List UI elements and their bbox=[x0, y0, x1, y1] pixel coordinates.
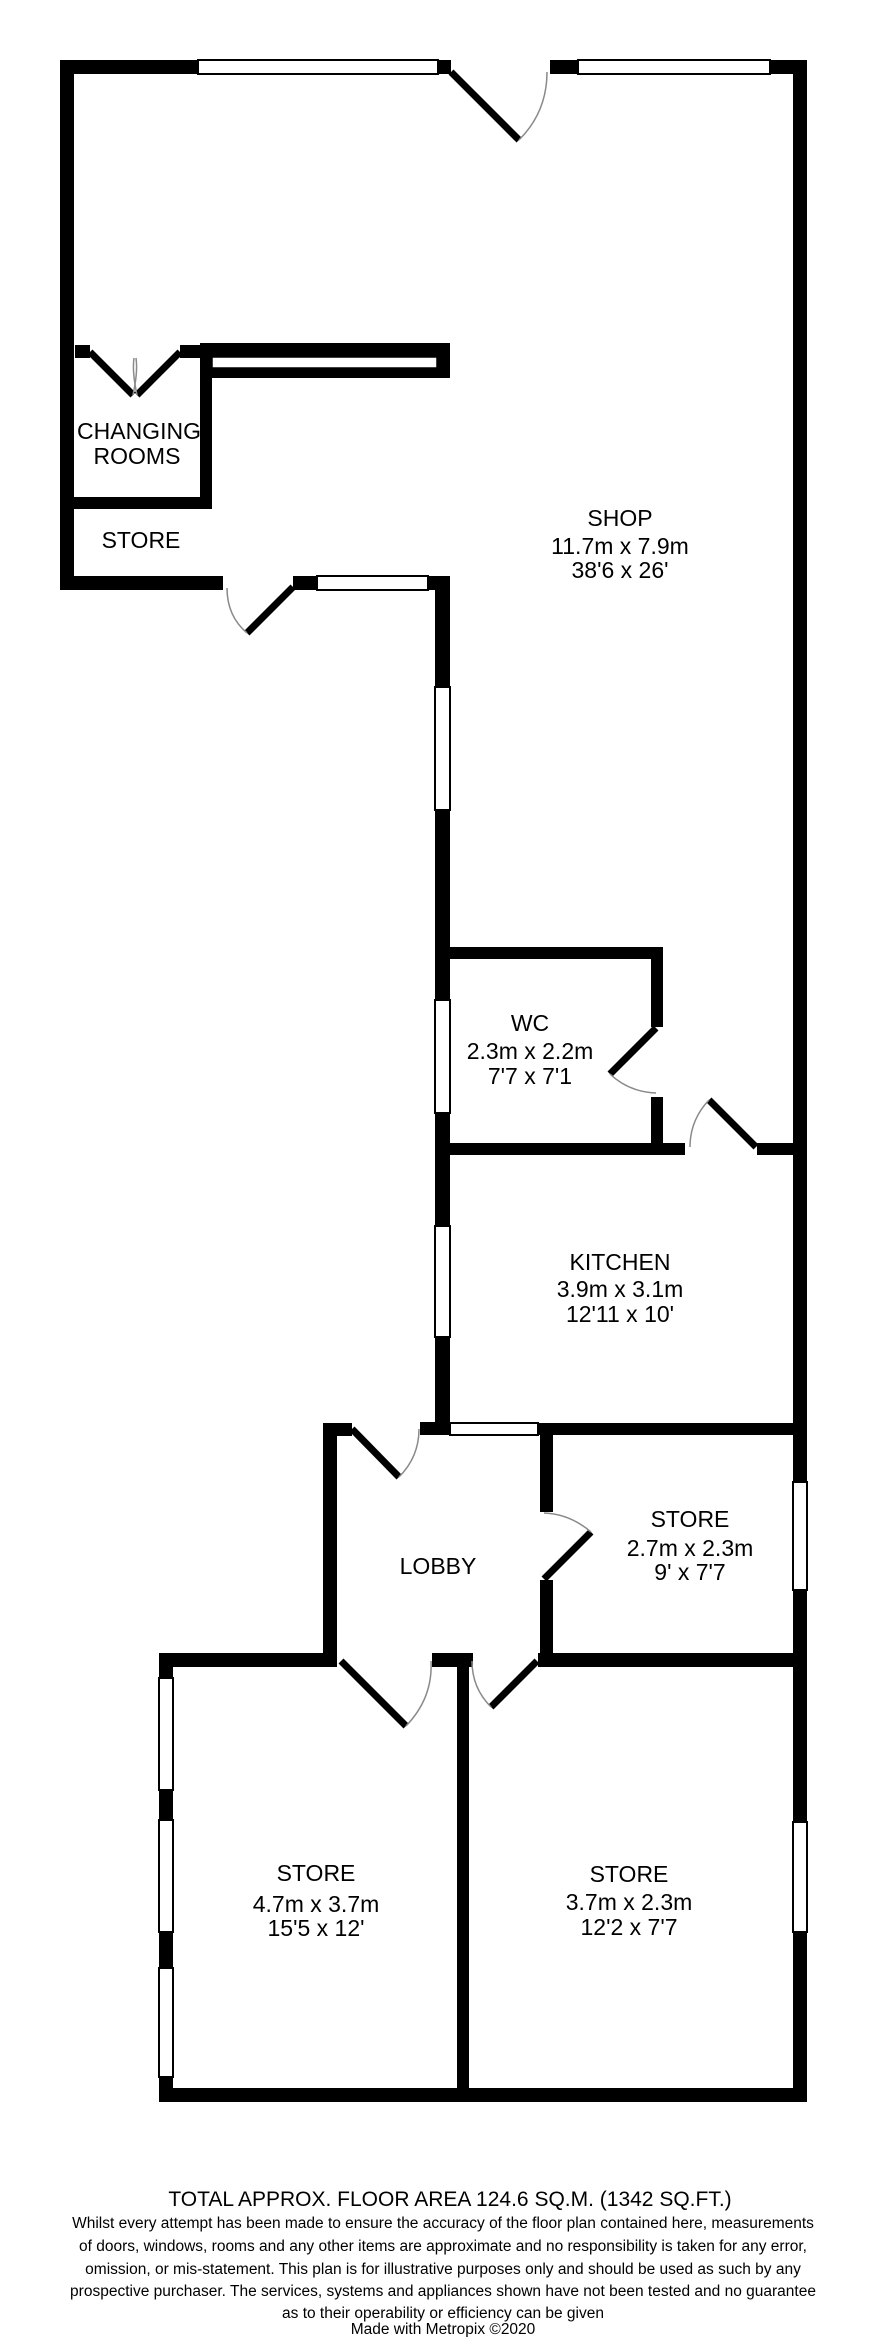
wall-segment bbox=[757, 1143, 793, 1155]
wall-segment bbox=[60, 60, 74, 590]
wall-segment bbox=[538, 1653, 793, 1667]
window bbox=[212, 357, 437, 368]
door-swing-arc bbox=[610, 1074, 656, 1093]
door-leaf bbox=[451, 72, 519, 140]
room-dim-metric: 4.7m x 3.7m bbox=[253, 1891, 380, 1917]
wall-segment bbox=[159, 1932, 173, 1968]
room-dim-metric: 3.9m x 3.1m bbox=[557, 1276, 684, 1302]
wall-segment bbox=[435, 1143, 685, 1155]
room-dim-imperial: 15'5 x 12' bbox=[267, 1915, 364, 1941]
room-label-store-bottom-right: STORE bbox=[590, 1861, 669, 1887]
wall-segment bbox=[438, 60, 451, 74]
door-leaf bbox=[90, 352, 133, 395]
wall-segment bbox=[159, 2088, 807, 2102]
door-swing-arc bbox=[227, 588, 247, 633]
wall-segment bbox=[159, 1653, 173, 1678]
metropix-credit: Made with Metropix ©2020 bbox=[351, 2321, 536, 2337]
wall-segment bbox=[538, 1423, 793, 1435]
room-dim-imperial: 12'11 x 10' bbox=[566, 1301, 674, 1327]
room-dim-metric: 2.7m x 2.3m bbox=[627, 1535, 754, 1561]
room-label-kitchen: KITCHEN bbox=[570, 1249, 671, 1275]
window bbox=[793, 1482, 807, 1590]
room-label-shop: SHOP bbox=[587, 505, 652, 531]
wall-segment bbox=[60, 60, 198, 74]
window bbox=[317, 576, 428, 590]
wall-segment bbox=[75, 345, 90, 358]
door-swing-arc bbox=[399, 1429, 419, 1477]
door-swing-arc bbox=[690, 1100, 709, 1147]
door-swing-arc bbox=[472, 1661, 491, 1707]
door-leaf bbox=[247, 587, 293, 633]
room-label-store-bottom-left: STORE bbox=[277, 1860, 356, 1886]
window bbox=[435, 1226, 450, 1337]
window bbox=[450, 1423, 538, 1435]
wall-segment bbox=[200, 345, 212, 497]
door-leaf bbox=[544, 1532, 591, 1579]
room-dim-metric: 3.7m x 2.3m bbox=[566, 1889, 693, 1915]
wall-segment bbox=[435, 810, 450, 1000]
disclaimer-line: of doors, windows, rooms and any other i… bbox=[79, 2238, 807, 2255]
wall-segment bbox=[540, 1435, 553, 1512]
disclaimer-line: Whilst every attempt has been made to en… bbox=[72, 2215, 814, 2232]
footer: TOTAL APPROX. FLOOR AREA 124.6 SQ.M. (13… bbox=[70, 2188, 816, 2337]
door-leaf bbox=[352, 1429, 399, 1477]
window bbox=[578, 60, 770, 74]
disclaimer-line: prospective purchaser. The services, sys… bbox=[70, 2283, 816, 2300]
wall-segment bbox=[435, 590, 450, 687]
wall-segment bbox=[550, 60, 578, 74]
room-dim-imperial: 9' x 7'7 bbox=[654, 1559, 725, 1585]
wall-segment bbox=[159, 2077, 173, 2102]
wall-segment bbox=[651, 947, 663, 1027]
wall-segment bbox=[159, 1653, 337, 1667]
wall-segment bbox=[323, 1435, 337, 1653]
disclaimer-line: omission, or mis-statement. This plan is… bbox=[85, 2261, 801, 2278]
wall-segment bbox=[793, 60, 807, 1482]
window bbox=[159, 1968, 173, 2077]
room-dim-imperial: 12'2 x 7'7 bbox=[580, 1914, 677, 1940]
wall-segment bbox=[323, 1423, 352, 1436]
window bbox=[159, 1820, 173, 1932]
room-label-changing-rooms: ROOMS bbox=[94, 443, 181, 469]
wall-segment bbox=[435, 947, 663, 959]
wall-segment bbox=[180, 345, 200, 358]
total-floor-area: TOTAL APPROX. FLOOR AREA 124.6 SQ.M. (13… bbox=[168, 2188, 731, 2211]
room-label-store-top: STORE bbox=[102, 527, 181, 553]
wall-segment bbox=[420, 1422, 450, 1435]
floor-plan: SHOP 11.7m x 7.9m 38'6 x 26' CHANGING RO… bbox=[0, 0, 886, 2337]
room-labels: SHOP 11.7m x 7.9m 38'6 x 26' CHANGING RO… bbox=[77, 418, 753, 1941]
doors bbox=[90, 72, 756, 1726]
door-leaf bbox=[709, 1100, 756, 1147]
room-label-store-mid: STORE bbox=[651, 1506, 730, 1532]
window bbox=[435, 687, 450, 810]
window bbox=[159, 1678, 173, 1790]
door-leaf bbox=[137, 352, 180, 395]
wall-segment bbox=[428, 576, 450, 590]
wall-segment bbox=[60, 576, 223, 590]
door-swing-arc bbox=[544, 1513, 591, 1532]
door-leaf bbox=[491, 1661, 537, 1707]
room-label-lobby: LOBBY bbox=[400, 1553, 477, 1579]
door-leaf bbox=[610, 1028, 656, 1074]
room-dim-metric: 11.7m x 7.9m bbox=[551, 533, 689, 559]
window bbox=[793, 1822, 807, 1932]
disclaimer-line: as to their operability or efficiency ca… bbox=[282, 2305, 604, 2322]
wall-segment bbox=[435, 1337, 450, 1435]
door-swing-arc bbox=[519, 72, 547, 140]
door-swing-arc bbox=[406, 1661, 431, 1726]
window bbox=[198, 60, 438, 74]
wall-segment bbox=[793, 1590, 807, 1822]
room-dim-imperial: 38'6 x 26' bbox=[571, 557, 668, 583]
wall-segment bbox=[293, 576, 317, 590]
window bbox=[435, 1000, 450, 1113]
wall-segment bbox=[435, 1113, 450, 1226]
wall-segment bbox=[457, 1663, 469, 2088]
wall-segment bbox=[793, 1932, 807, 2102]
wall-segment bbox=[159, 1790, 173, 1820]
wall-segment bbox=[540, 1580, 553, 1653]
room-dim-metric: 2.3m x 2.2m bbox=[467, 1038, 594, 1064]
room-label-changing-rooms: CHANGING bbox=[77, 418, 201, 444]
wall-segment bbox=[60, 497, 212, 509]
room-dim-imperial: 7'7 x 7'1 bbox=[488, 1063, 572, 1089]
room-label-wc: WC bbox=[511, 1010, 549, 1036]
windows bbox=[159, 60, 807, 2077]
door-leaf bbox=[341, 1661, 406, 1726]
